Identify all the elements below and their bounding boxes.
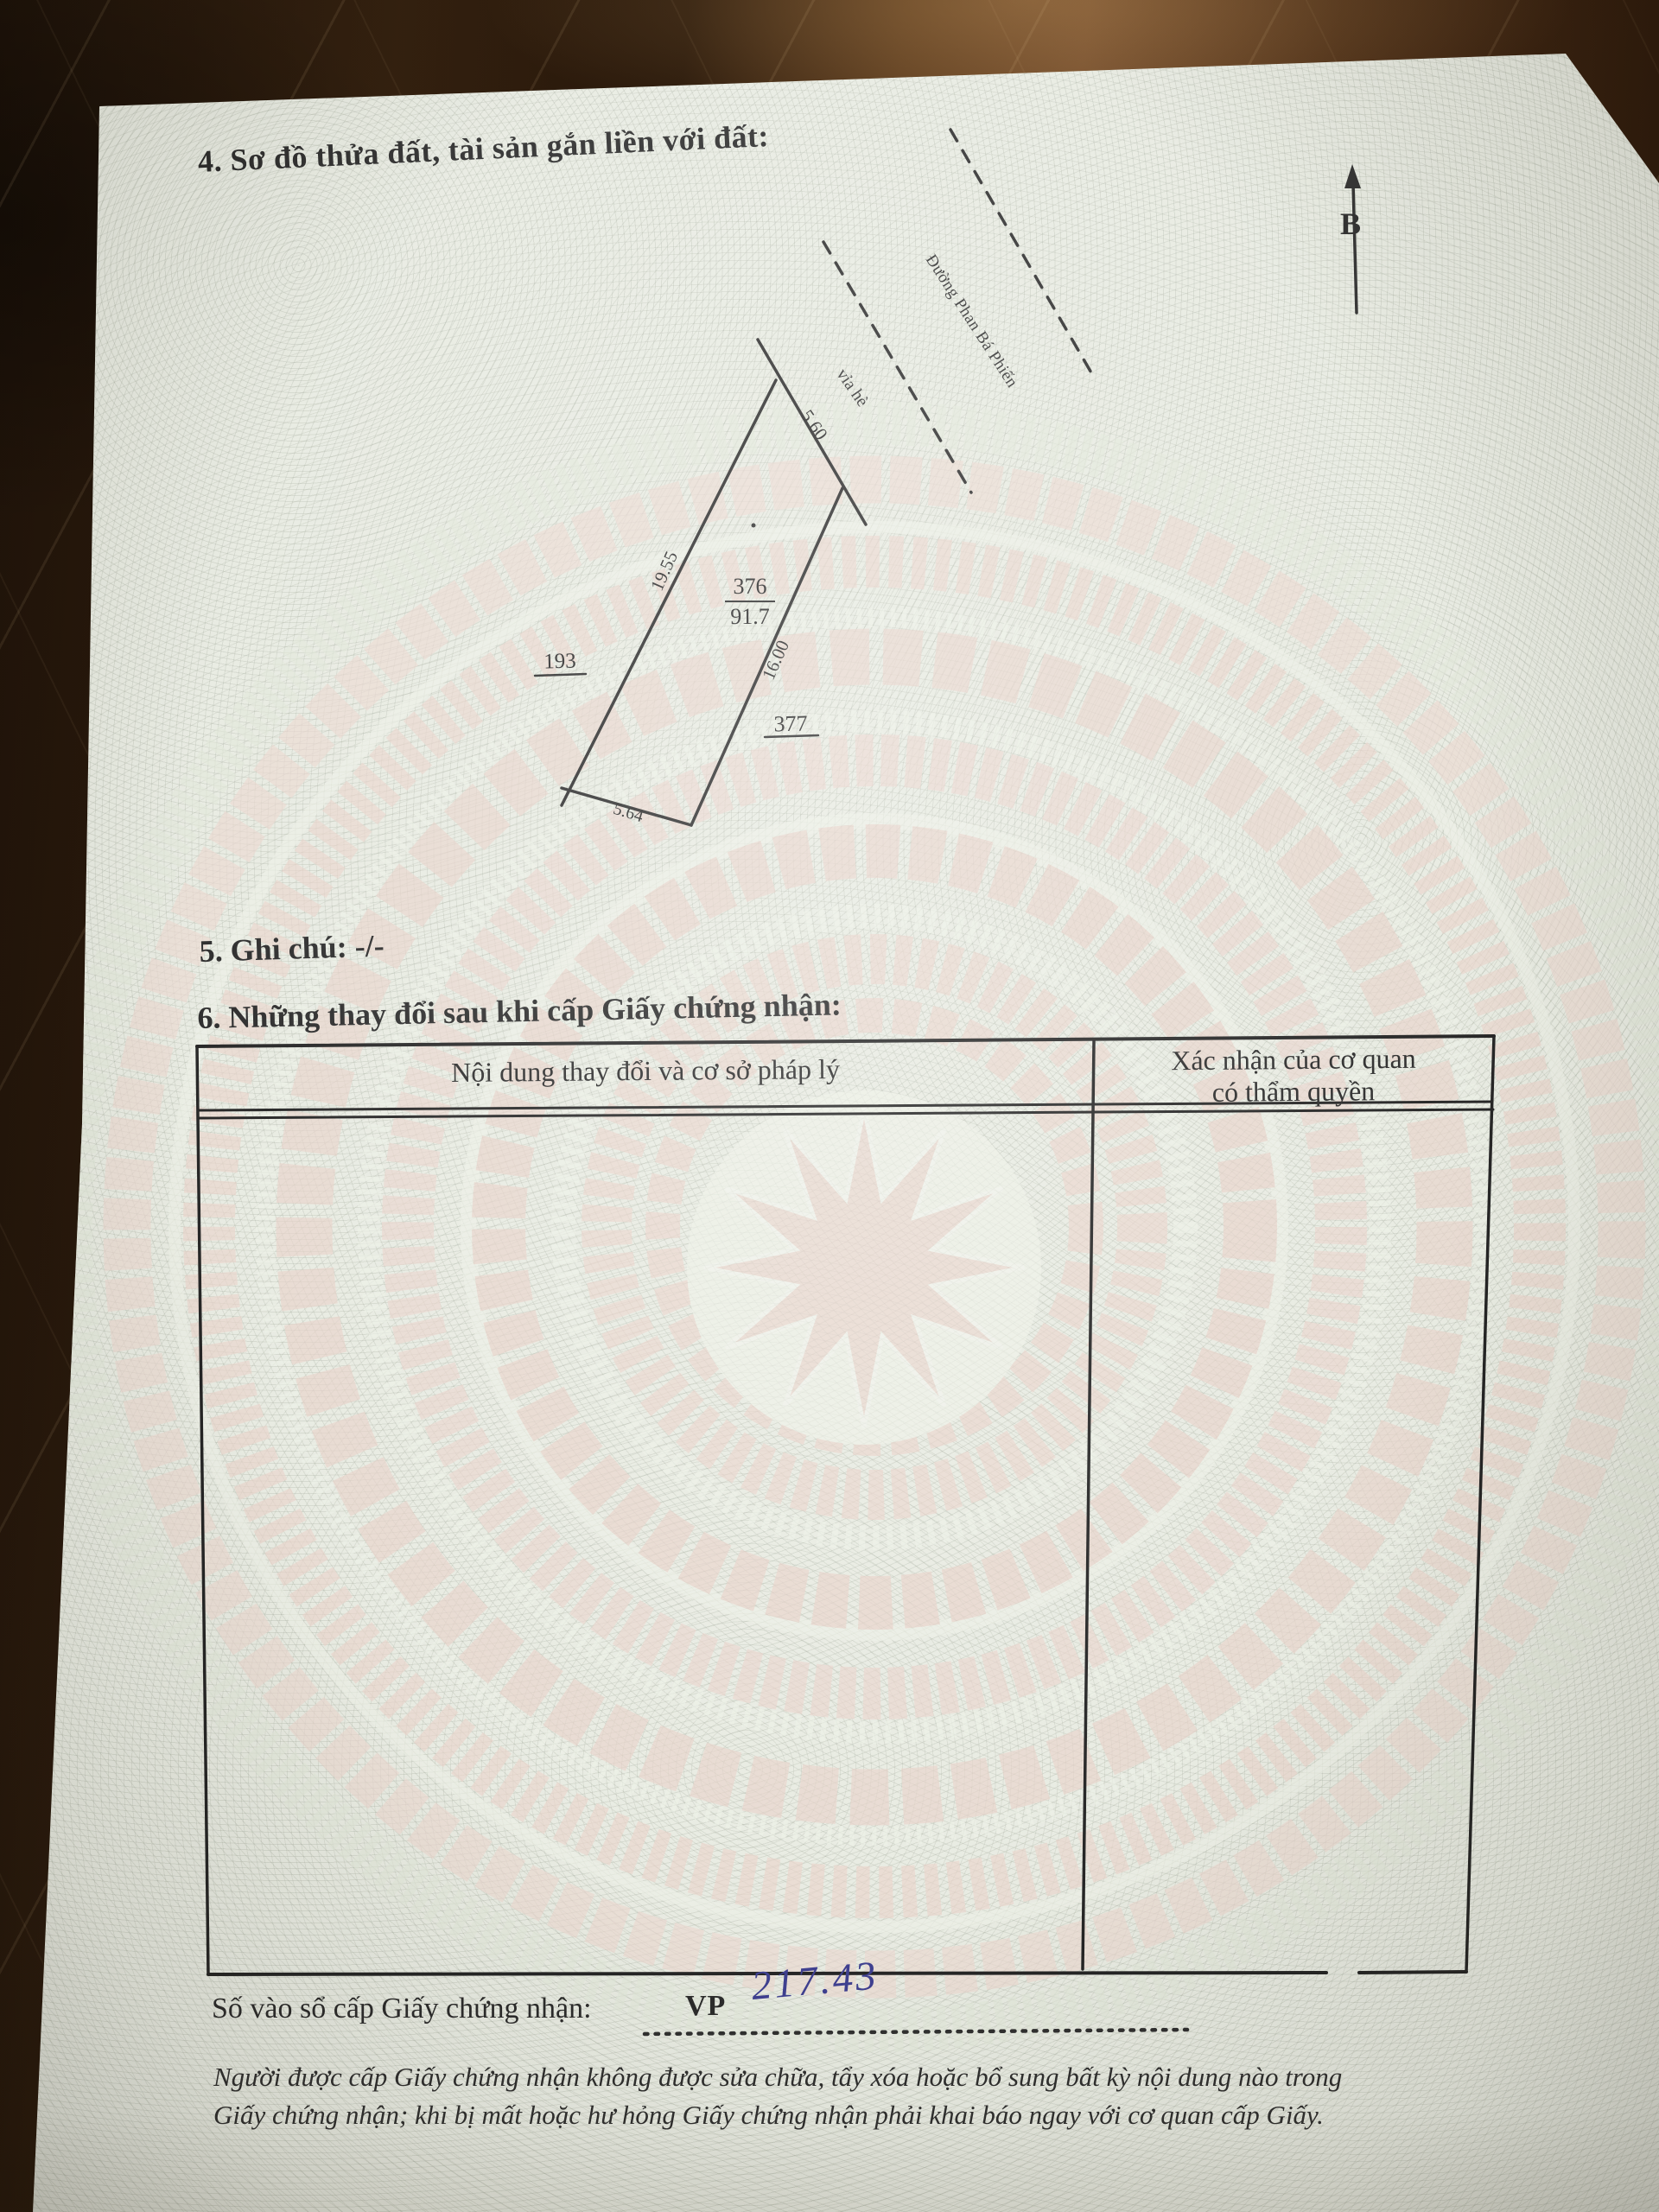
parcel-outline — [562, 340, 866, 825]
table-col2-header-line1: Xác nhận của cơ quan — [1103, 1042, 1484, 1077]
survey-point-dot — [752, 524, 756, 528]
table-col1-header: Nội dung thay đổi và cơ sở pháp lý — [261, 1052, 1030, 1090]
table-borders — [197, 1036, 1494, 1974]
street-dashed-line-1 — [950, 130, 1096, 380]
registry-dotted-line — [645, 2030, 1187, 2034]
parcel-area: 91.7 — [725, 602, 775, 630]
footer-warning-line2: Giấy chứng nhận; khi bị mất hoặc hư hỏng… — [213, 2100, 1324, 2131]
footer-warning-line1: Người được cấp Giấy chứng nhận không đượ… — [213, 2062, 1342, 2093]
photo-of-land-certificate: 4. Sơ đồ thửa đất, tài sản gắn liền với … — [0, 0, 1659, 2212]
registry-series-prefix: VP — [685, 1990, 726, 2023]
section5-title: 5. Ghi chú: -/- — [199, 927, 385, 969]
adjacent-parcel-left-underline — [535, 674, 586, 676]
adjacent-parcel-right-number: 377 — [773, 710, 808, 737]
north-label: B — [1340, 206, 1361, 242]
adjacent-parcel-left-number: 193 — [543, 650, 576, 675]
table-col2-header-line2: có thẩm quyền — [1103, 1074, 1484, 1109]
registry-number-label: Số vào sổ cấp Giấy chứng nhận: — [212, 1993, 592, 2025]
parcel-label: 376 91.7 — [725, 574, 775, 630]
parcel-number: 376 — [725, 574, 775, 602]
